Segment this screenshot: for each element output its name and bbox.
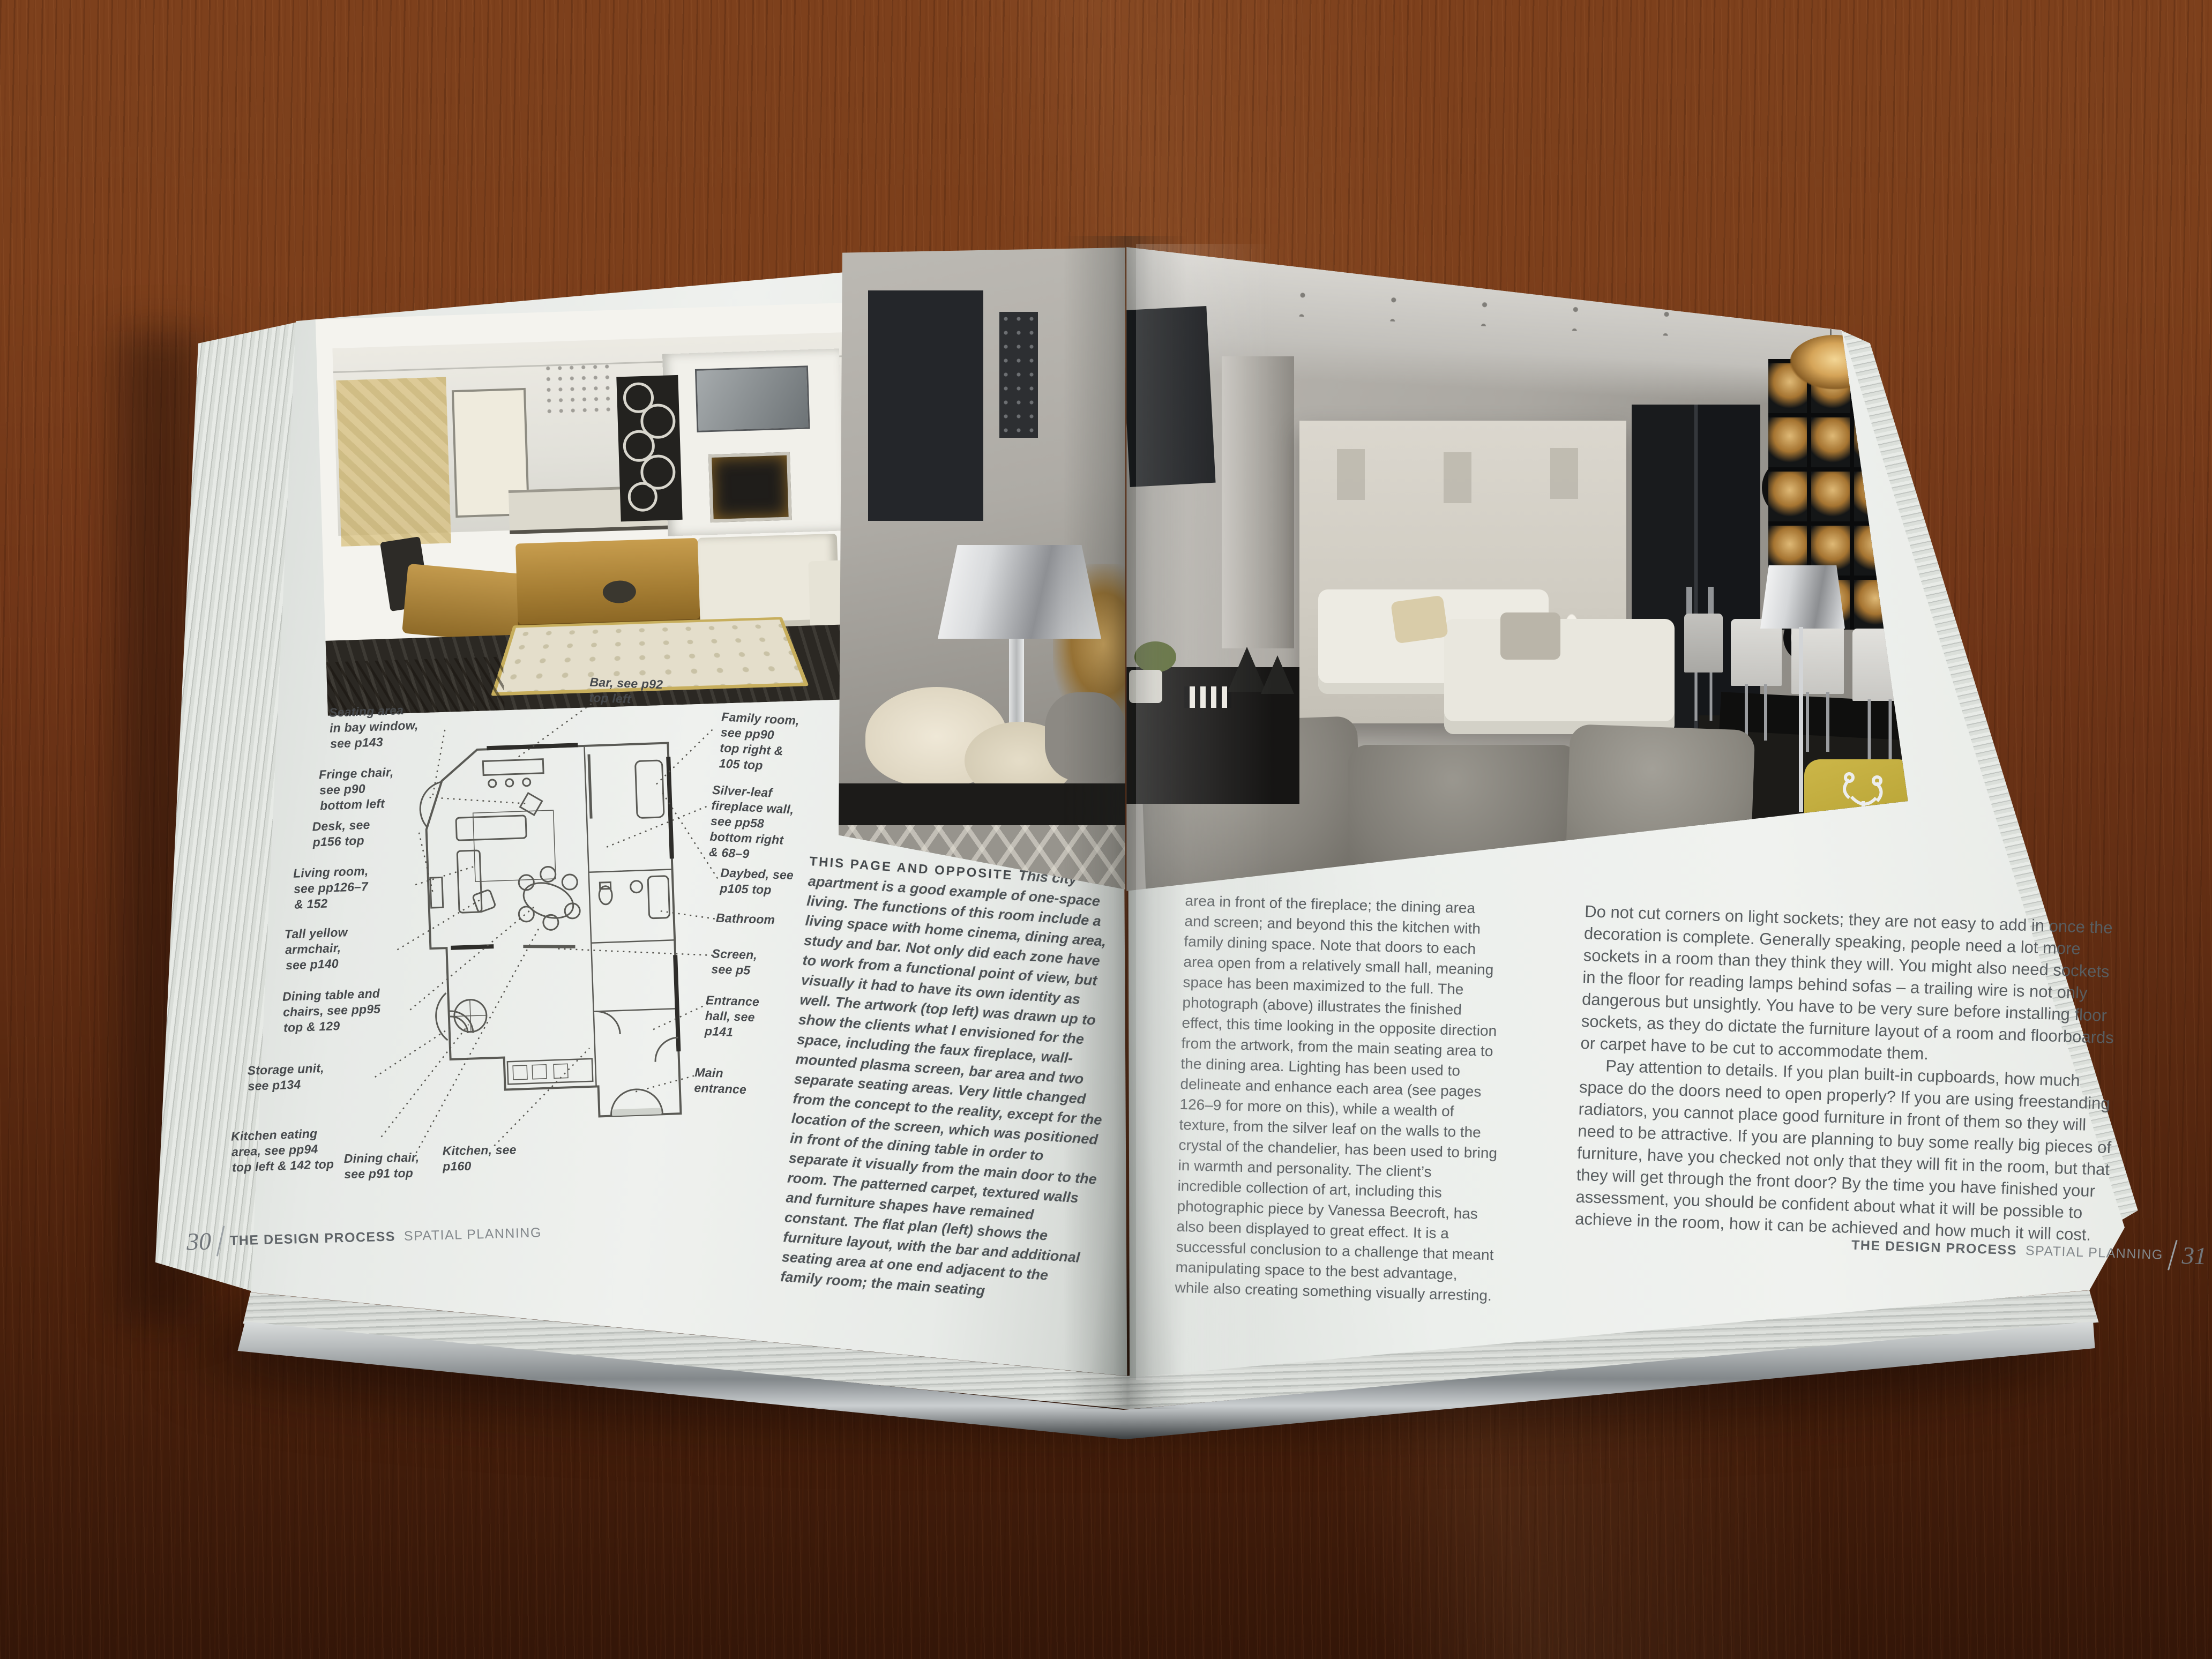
plan-label-dining-table: Dining table and chairs, see pp95 top & … [282, 985, 399, 1035]
dining-chair-1 [1684, 614, 1723, 672]
caption-body: This city apartment is a good example of… [780, 867, 1107, 1298]
sketch-plasma-screen [695, 365, 810, 432]
plan-label-storage-unit: Storage unit, see p134 [247, 1059, 366, 1094]
dining-chair-2 [1731, 619, 1782, 686]
footer-subsection: SPATIAL PLANNING [404, 1226, 542, 1243]
plan-label-desk: Desk, see p156 top [312, 816, 420, 850]
photo-beige-pillow [1391, 595, 1448, 644]
photo-dark-doorway [868, 290, 983, 521]
page-number-31: 31 [2181, 1243, 2207, 1268]
concept-sketch-illustration [316, 302, 872, 716]
plan-label-silver-leaf-fireplace-wall: Silver-leaf fireplace wall, see pp58 bot… [708, 782, 822, 866]
sketch-scroll-grille [616, 375, 682, 521]
plan-label-bar: Bar, see p92 top left [589, 675, 697, 709]
photo-wall-keypad [999, 312, 1038, 438]
column-2-paragraph-1: Do not cut corners on light sockets; the… [1580, 900, 2126, 1071]
artwork-window-shapes [1316, 445, 1610, 536]
footer-section: THE DESIGN PROCESS [1851, 1238, 2017, 1257]
sketch-firebox [708, 452, 792, 522]
plan-label-tall-yellow-armchair: Tall yellow armchair, see p140 [285, 923, 388, 974]
footer-section: THE DESIGN PROCESS [230, 1230, 396, 1247]
photo-floor-lamp-shade [1760, 565, 1845, 629]
plan-label-family-room: Family room, see pp90 top right & 105 to… [719, 709, 821, 776]
sketch-gold-curtain-wall [336, 377, 451, 547]
sketch-chandelier [542, 361, 613, 414]
page-curvature-highlight [1136, 244, 1275, 1380]
column-2-paragraph-2: Pay attention to details. If you plan bu… [1575, 1054, 2121, 1247]
plan-label-entrance-hall: Entrance hall, see p141 [705, 992, 800, 1042]
plan-label-kitchen: Kitchen, see p160 [443, 1141, 545, 1174]
floor-plan-drawing [405, 708, 706, 1141]
photo-of-open-book-on-table: Seating area in bay window, see p143 Fri… [0, 0, 2212, 1659]
plan-label-living-room: Living room, see pp126–7 & 152 [293, 862, 410, 912]
plan-label-fringe-chair: Fringe chair, see p90 bottom left [319, 764, 428, 814]
footer-divider [216, 1225, 225, 1256]
footer-subsection: SPATIAL PLANNING [2026, 1244, 2164, 1261]
page-number-30: 30 [186, 1229, 212, 1254]
plan-label-main-entrance: Main entrance [694, 1065, 794, 1099]
footer-divider [2168, 1240, 2178, 1271]
right-column-2: Do not cut corners on light sockets; the… [1575, 900, 2126, 1246]
plan-label-seating-area: Seating area in bay window, see p143 [329, 701, 446, 751]
dining-chair-1-legs [1686, 672, 1721, 721]
photo-grey-pillow [1500, 612, 1560, 660]
photo-floor-lamp-stem [1799, 627, 1803, 812]
plan-label-screen: Screen, see p5 [711, 946, 798, 980]
